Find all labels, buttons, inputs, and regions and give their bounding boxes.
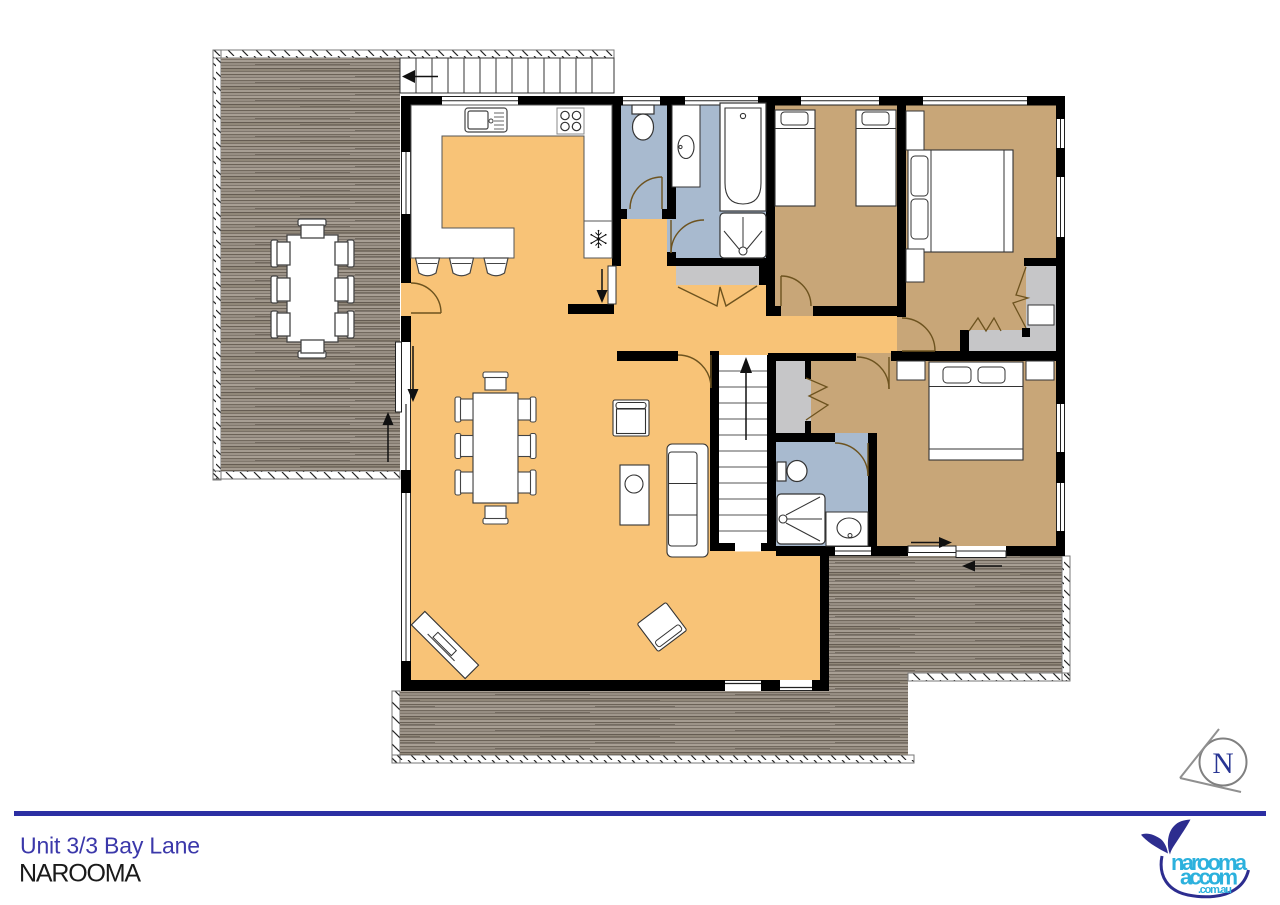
svg-text:NAROOMA: NAROOMA (19, 860, 141, 888)
svg-text:Unit 3/3 Bay Lane: Unit 3/3 Bay Lane (20, 833, 200, 859)
svg-text:.com.au: .com.au (1198, 884, 1232, 896)
svg-text:N: N (1212, 748, 1233, 780)
